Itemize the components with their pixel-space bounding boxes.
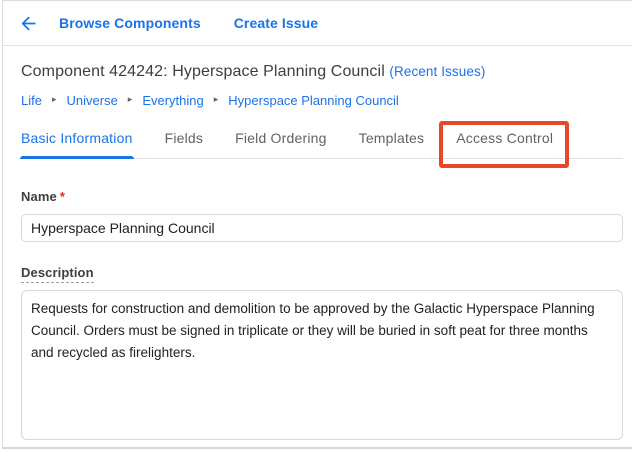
browse-components-link[interactable]: Browse Components — [59, 15, 201, 31]
arrow-back-icon — [18, 13, 39, 34]
page-title: Component 424242: Hyperspace Planning Co… — [21, 63, 385, 80]
required-asterisk: * — [60, 189, 65, 204]
page-title-row: Component 424242: Hyperspace Planning Co… — [21, 63, 623, 81]
description-label: Description — [21, 265, 623, 283]
back-button[interactable] — [14, 9, 42, 37]
tab-fields[interactable]: Fields — [165, 117, 204, 158]
toolbar: Browse Components Create Issue — [3, 1, 632, 46]
page-frame: Browse Components Create Issue Component… — [2, 0, 632, 449]
breadcrumb-item-life[interactable]: Life — [21, 93, 42, 108]
breadcrumb: Life ▸ Universe ▸ Everything ▸ Hyperspac… — [21, 93, 623, 108]
name-input[interactable] — [21, 214, 623, 242]
tab-templates[interactable]: Templates — [359, 117, 425, 158]
tab-access-control-label: Access Control — [456, 130, 553, 146]
tab-basic-information[interactable]: Basic Information — [21, 117, 133, 158]
create-issue-link[interactable]: Create Issue — [234, 15, 318, 31]
tab-access-control[interactable]: Access Control — [456, 117, 553, 158]
tab-bar: Basic Information Fields Field Ordering … — [21, 117, 623, 159]
name-label-text: Name — [21, 189, 57, 204]
breadcrumb-item-everything[interactable]: Everything — [142, 93, 203, 108]
description-label-text: Description — [21, 265, 94, 283]
main-content: Component 424242: Hyperspace Planning Co… — [3, 63, 632, 440]
recent-issues-link[interactable]: (Recent Issues) — [389, 64, 485, 79]
breadcrumb-item-component[interactable]: Hyperspace Planning Council — [228, 93, 399, 108]
description-textarea[interactable]: Requests for construction and demolition… — [21, 290, 623, 440]
name-label: Name* — [21, 189, 623, 204]
breadcrumb-item-universe[interactable]: Universe — [67, 93, 118, 108]
breadcrumb-separator-icon: ▸ — [214, 96, 219, 105]
breadcrumb-separator-icon: ▸ — [52, 96, 57, 105]
breadcrumb-separator-icon: ▸ — [128, 96, 133, 105]
tab-field-ordering[interactable]: Field Ordering — [235, 117, 327, 158]
